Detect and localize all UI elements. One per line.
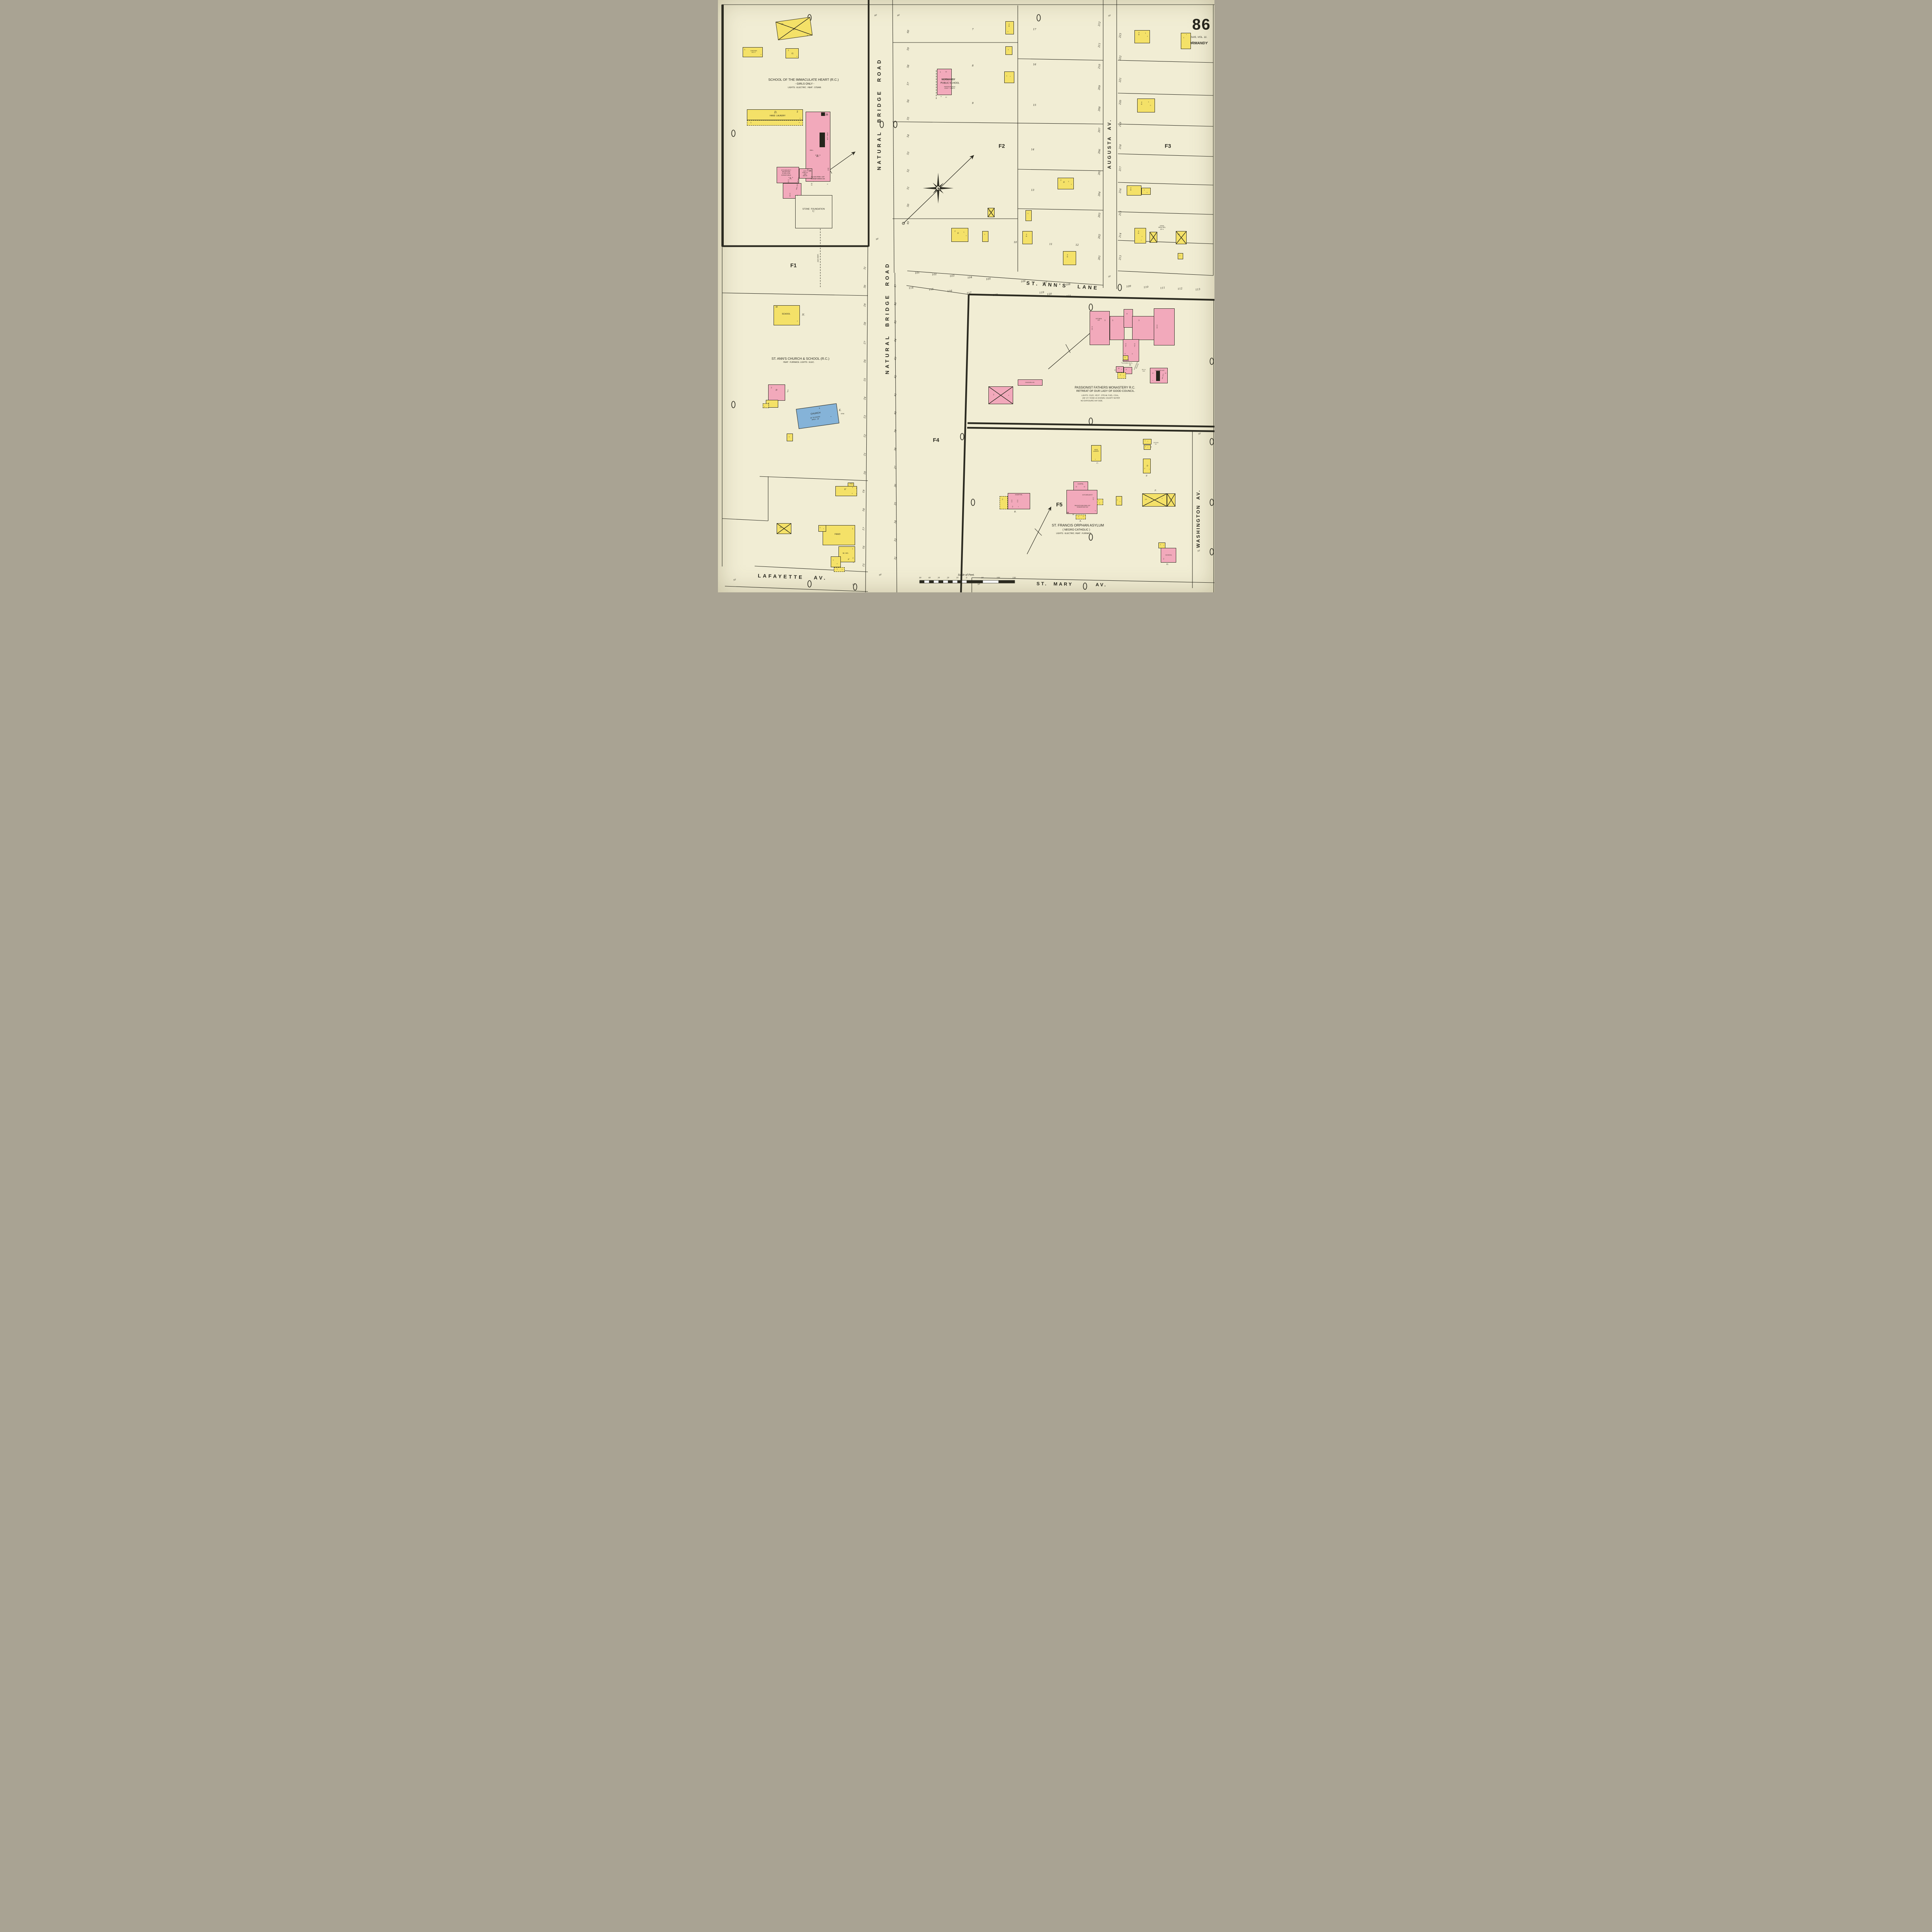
hand-laundry-c bbox=[1091, 445, 1101, 461]
map-label: 0 bbox=[1099, 503, 1100, 504]
map-label: 0 bbox=[1150, 105, 1151, 106]
post-office bbox=[835, 486, 857, 496]
map-label: 1 bbox=[789, 436, 789, 438]
map-label: 1 bbox=[1170, 498, 1170, 500]
scale-tick-label: 0 bbox=[966, 577, 967, 579]
dwelling bbox=[1181, 33, 1191, 49]
block-line bbox=[760, 476, 868, 481]
map-label: 1 bbox=[940, 71, 940, 73]
block-line bbox=[1118, 271, 1213, 276]
lot-number: 16 bbox=[1033, 63, 1036, 66]
lot-number: 46 bbox=[894, 302, 898, 306]
map-label: 1 bbox=[852, 487, 853, 489]
lot-number: 31 bbox=[863, 266, 867, 270]
block-line bbox=[722, 519, 768, 521]
map-label: D bbox=[1147, 465, 1148, 468]
hospital-wing bbox=[1000, 496, 1008, 509]
map-label: 2"V.P.& 50' bbox=[1122, 360, 1129, 361]
dwelling bbox=[1004, 71, 1014, 83]
lot-number: 202 bbox=[1098, 234, 1102, 239]
map-label: 1 bbox=[963, 231, 964, 233]
map-label: D bbox=[776, 389, 777, 391]
map-label: 1½ bbox=[781, 23, 783, 25]
oval-mark bbox=[1210, 549, 1213, 555]
dwelling bbox=[1026, 210, 1032, 221]
lot-number: 101 bbox=[915, 271, 920, 275]
map-label: • bbox=[1009, 394, 1009, 396]
map-label: 2 D bbox=[1009, 24, 1010, 27]
lot-number: 16 bbox=[862, 546, 866, 549]
monastery-barn bbox=[988, 386, 1013, 404]
map-label: A. bbox=[1080, 520, 1082, 522]
map-label: x bbox=[842, 569, 843, 570]
lot-number: 26 bbox=[863, 359, 867, 363]
lot-number: 53 bbox=[906, 151, 910, 155]
lot-number: 213 bbox=[1119, 255, 1122, 260]
street-label-natural-bridge-road-lower: NATURAL BRIDGE ROAD bbox=[884, 262, 890, 374]
street-label-washington-av: WASHINGTON AV. bbox=[1195, 489, 1201, 548]
dwelling-j bbox=[768, 384, 785, 401]
map-label: PUBLIC SCHOOL bbox=[940, 82, 959, 85]
map-label: 0 bbox=[797, 195, 798, 196]
compass-center bbox=[937, 187, 939, 189]
block-line bbox=[1118, 212, 1213, 214]
map-label: 1 bbox=[1078, 516, 1079, 517]
map-label: x bbox=[1163, 545, 1164, 546]
map-label: LIGHTS : ELEC. HEAT : STEAM. FUEL: COAL. bbox=[1082, 394, 1119, 396]
lot-number: 217 bbox=[1119, 166, 1122, 172]
scale-tick-label: 20 bbox=[947, 577, 949, 579]
lot-number: 41 bbox=[894, 393, 898, 397]
lot-number: 54 bbox=[906, 134, 910, 138]
lot-number: 11 bbox=[1049, 243, 1052, 246]
map-label: 12 12 12 bbox=[788, 180, 789, 184]
map-label: 12 12 12 bbox=[789, 193, 791, 197]
lot-number: 19 bbox=[862, 490, 866, 493]
map-label: "B." bbox=[815, 155, 821, 158]
lot-number: 204 bbox=[1098, 191, 1102, 197]
lot-number: 104 bbox=[967, 276, 972, 279]
lot-number: 206 bbox=[1098, 149, 1102, 154]
lot-number: 208 bbox=[1098, 106, 1102, 112]
shed bbox=[1150, 232, 1157, 243]
lot-number: 51 bbox=[906, 186, 910, 190]
map-label: • bbox=[823, 528, 824, 530]
map-label: 12 12 bbox=[1011, 500, 1012, 502]
lot-number: 22 bbox=[863, 434, 867, 438]
map-label: 2B bbox=[825, 114, 828, 116]
lot-number: 108 bbox=[1065, 283, 1070, 286]
map-label: 2 bbox=[1144, 468, 1145, 470]
map-label: LAUNDRY-1ST bbox=[1155, 370, 1165, 371]
barn-f-wing bbox=[1167, 493, 1175, 507]
district-label-f4: F4 bbox=[933, 437, 939, 444]
chimney bbox=[1156, 371, 1160, 381]
map-label: 1 bbox=[1145, 440, 1146, 442]
map-label: 3 bbox=[1124, 353, 1125, 355]
street-label-augusta-av: AUGUSTA AV. bbox=[1106, 119, 1112, 169]
map-label: x bbox=[837, 563, 838, 565]
oval-mark bbox=[1037, 15, 1040, 21]
map-label: F. bbox=[1155, 490, 1156, 492]
map-label: x bbox=[1120, 501, 1121, 503]
dwelling bbox=[1063, 251, 1076, 265]
map-label: NO EXPOSURE ANY SIDE. bbox=[1081, 400, 1103, 401]
lot-number: 110 bbox=[1143, 286, 1148, 289]
lot-number: 215 bbox=[1119, 211, 1122, 216]
scale-tick-label: 50 bbox=[919, 577, 922, 579]
block-line bbox=[1118, 93, 1213, 95]
map-label: 12 12 bbox=[1017, 500, 1018, 502]
map-label: 2 bbox=[954, 231, 955, 233]
map-label: x bbox=[797, 320, 798, 322]
map-label: 12 bbox=[1084, 486, 1085, 488]
map-label: 1 bbox=[1179, 255, 1180, 257]
map-label: STONE FOUNDATION 'C.' bbox=[803, 208, 825, 213]
block-line bbox=[722, 293, 868, 296]
map-label: 2 bbox=[1120, 374, 1121, 376]
map-label: W. HO. bbox=[843, 553, 849, 555]
lot-number: 221 bbox=[1119, 77, 1122, 83]
map-label: • bbox=[1141, 240, 1141, 241]
oval-mark bbox=[1118, 284, 1121, 291]
lot-number: 24 bbox=[863, 396, 867, 400]
outbuilding bbox=[1117, 372, 1126, 379]
map-label: 1½ bbox=[780, 527, 782, 529]
map-label: B'S'T ONLY bbox=[827, 132, 828, 140]
lot-number: 12 bbox=[1075, 244, 1078, 247]
map-label: x bbox=[1071, 184, 1072, 185]
block-line bbox=[1018, 169, 1103, 171]
map-label: H. bbox=[1073, 514, 1075, 516]
map-label: 12 bbox=[1165, 373, 1167, 374]
lot-number: 38 bbox=[894, 447, 898, 451]
map-label: RECEPTION R'MS-1ST DORMITORY-2D bbox=[1075, 505, 1090, 509]
asylum-main bbox=[1066, 490, 1097, 514]
lot-number: 209 bbox=[1098, 85, 1102, 90]
map-label: 12 bbox=[946, 71, 947, 73]
lot-number: 57 bbox=[906, 82, 910, 86]
lot-number: 118 bbox=[993, 293, 998, 297]
map-label: CLASS R'MS -1ST DORMITORIES-2D bbox=[811, 176, 825, 180]
map-label: D bbox=[1063, 182, 1065, 184]
map-label: 1 bbox=[1007, 31, 1008, 32]
map-label: 10 bbox=[1114, 370, 1116, 371]
lot-number: 120 bbox=[1047, 293, 1052, 296]
block-line bbox=[1118, 154, 1213, 156]
district-label-f3: F3 bbox=[1165, 143, 1171, 150]
lot-number: 49 bbox=[906, 221, 910, 225]
map-label: B'S'T R'MS-1½ AND ABOVE bbox=[802, 170, 808, 177]
store-annex bbox=[831, 556, 841, 567]
map-label: 12 12 bbox=[1093, 497, 1094, 500]
map-label: ( NEGRO CATHOLIC ) bbox=[1063, 529, 1090, 532]
lot-number: 107 bbox=[1042, 281, 1047, 285]
lot-number: 114 bbox=[908, 286, 913, 290]
block-line bbox=[1118, 182, 1213, 185]
lot-number: 55 bbox=[906, 117, 910, 121]
lot-number: 33 bbox=[894, 538, 898, 542]
lot-number: 214 bbox=[1119, 233, 1122, 238]
lot-number: 219 bbox=[1119, 122, 1122, 127]
map-label: S' bbox=[848, 559, 850, 561]
lot-number: 211 bbox=[1098, 43, 1102, 48]
map-label: • bbox=[1153, 380, 1153, 382]
scale-tick-label: 30 bbox=[938, 577, 940, 579]
scale-tick-label: 10 bbox=[956, 577, 959, 579]
lot-number: 58 bbox=[906, 65, 910, 68]
hand-laundry-annex bbox=[747, 120, 803, 126]
block-line bbox=[968, 423, 1214, 427]
map-label: 12 12 8 bbox=[1134, 344, 1135, 348]
lot-number: 14 bbox=[1031, 148, 1034, 151]
dwelling bbox=[1022, 231, 1032, 244]
lot-number: 44 bbox=[894, 338, 898, 342]
map-label: 1 bbox=[750, 121, 752, 123]
map-label: 1 bbox=[837, 568, 837, 570]
map-label: E bbox=[1146, 475, 1147, 477]
map-label: HEAT : FURNACE. LIGHTS : ELEC. bbox=[783, 362, 815, 364]
map-label: HAND LAUNDRY bbox=[1093, 449, 1099, 452]
lot-number: 218 bbox=[1119, 144, 1122, 150]
lot-number: 15 bbox=[1033, 104, 1036, 107]
map-label: 0 bbox=[1083, 516, 1084, 518]
map-label: x bbox=[966, 235, 967, 237]
block-line bbox=[866, 247, 868, 592]
lot-number: 106 bbox=[1020, 280, 1026, 283]
annotation-immaculate-heart: SCHOOL OF THE IMMACULATE HEART (R.C.) bbox=[768, 78, 838, 82]
lot-number: 30 bbox=[863, 285, 867, 289]
map-label: B. bbox=[1014, 511, 1017, 513]
map-label: x bbox=[1148, 447, 1148, 448]
map-label: 4 bbox=[1126, 313, 1128, 315]
map-label: x bbox=[799, 122, 800, 123]
lot-number: 119 bbox=[1039, 291, 1044, 294]
map-label: x bbox=[853, 562, 854, 563]
map-label: LIGHTS : ELECTRIC . HEAT : STEAM. bbox=[788, 87, 821, 89]
map-label: 1 bbox=[1068, 181, 1069, 182]
block-line bbox=[1018, 59, 1103, 60]
map-label: 2 D bbox=[1138, 231, 1139, 235]
map-label: NORMANDY bbox=[942, 78, 955, 81]
lot-number: 102 bbox=[932, 273, 937, 276]
windmill-barn bbox=[1176, 231, 1187, 244]
map-label: 3B bbox=[809, 170, 811, 172]
oval-mark bbox=[731, 401, 735, 408]
map-label: HEAT:FURNACE. LIGHT : LAMPS . bbox=[944, 86, 956, 90]
map-label: H. bbox=[802, 313, 805, 316]
barn-lafayette bbox=[777, 523, 791, 534]
map-label: CHICKEN HO. F. bbox=[750, 50, 757, 54]
map-label: E. bbox=[793, 28, 796, 31]
map-label: C. bbox=[1097, 463, 1099, 465]
lot-number: 25 bbox=[863, 378, 867, 382]
dwelling-wing bbox=[1141, 188, 1151, 195]
lot-number: 29 bbox=[863, 303, 867, 307]
lot-number: 9 bbox=[972, 102, 973, 105]
scale-tick-label: 150 bbox=[1012, 577, 1016, 579]
lot-number: 10 bbox=[1014, 241, 1017, 244]
lot-number: 36 bbox=[894, 484, 898, 488]
map-label: 16 12 12 bbox=[1156, 325, 1158, 329]
map-label: 2 D bbox=[1141, 102, 1142, 105]
map-label: x bbox=[1147, 36, 1148, 37]
oval-mark bbox=[893, 121, 897, 128]
map-label: KITCHEN 1ST bbox=[1096, 318, 1102, 321]
map-label: 2 D bbox=[1026, 234, 1027, 238]
map-label: H. bbox=[1129, 364, 1132, 367]
map-label: x bbox=[831, 416, 832, 417]
map-label: 3 bbox=[1138, 319, 1139, 321]
district-label-f2: F2 bbox=[998, 143, 1005, 150]
map-label: x bbox=[1147, 192, 1148, 194]
lot-number: 34 bbox=[894, 520, 898, 524]
chimney bbox=[820, 133, 825, 147]
map-label: 1 bbox=[1144, 189, 1145, 191]
map-label: 12 12 8 bbox=[1125, 344, 1126, 348]
sheet-number: 86 bbox=[1192, 15, 1211, 34]
block-line bbox=[1118, 124, 1213, 126]
map-label: 16 16 bbox=[828, 168, 829, 171]
map-label: 3 bbox=[1104, 319, 1105, 321]
block-line bbox=[755, 566, 868, 572]
lot-number: 40 bbox=[894, 411, 898, 415]
map-label: • bbox=[1095, 510, 1096, 512]
map-label: 150' 1½" HOSE AS SHOWN. COUNTY WATER bbox=[1082, 397, 1120, 399]
lot-number: 113 bbox=[1195, 288, 1200, 291]
map-label: D. bbox=[774, 111, 777, 114]
lot-number: 121 bbox=[1066, 294, 1071, 298]
map-label: 1 bbox=[984, 234, 985, 236]
map-label: 3 bbox=[1124, 357, 1125, 359]
district-label-f5: F5 bbox=[1056, 502, 1062, 508]
map-label: 1 bbox=[856, 488, 857, 490]
oval-mark bbox=[971, 499, 975, 506]
oval-mark bbox=[808, 581, 811, 587]
dwelling-j-porch bbox=[763, 403, 769, 408]
map-label: x bbox=[1142, 236, 1143, 238]
oval-mark bbox=[1210, 439, 1213, 445]
map-label: LIGHTS : ELECTRIC. HEAT : FURNACE. bbox=[1056, 533, 1092, 535]
dwelling bbox=[1134, 228, 1146, 243]
block-line bbox=[1118, 240, 1213, 244]
map-label: KITCHEN-B'S'T RECEPTION CLASS R'MS DORMI… bbox=[781, 170, 791, 176]
lot-number: 212 bbox=[1098, 21, 1102, 27]
map-label: 18 bbox=[776, 306, 778, 309]
lot-number: 116 bbox=[947, 289, 952, 293]
map-label: G. bbox=[1167, 563, 1169, 566]
map-label: -325 FEET- bbox=[817, 253, 819, 262]
map-label: 2 bbox=[1002, 498, 1003, 500]
map-label: KITCHEN-B'S'T bbox=[1082, 494, 1093, 496]
map-label: 0 bbox=[1132, 353, 1133, 355]
map-label: x bbox=[787, 529, 787, 531]
map-label: 2 D bbox=[1130, 187, 1131, 191]
dwelling bbox=[1127, 185, 1141, 196]
block-line bbox=[1066, 344, 1070, 353]
lot-number: 43 bbox=[894, 357, 898, 361]
lot-number: 42 bbox=[894, 375, 898, 379]
map-label: 1½ bbox=[1178, 234, 1180, 236]
lot-number: 28 bbox=[863, 322, 867, 326]
sanborn-map-sheet: 86 ST. LOUIS, VOL. 11. NORMANDY NATURAL … bbox=[718, 0, 1214, 592]
monastery-wing bbox=[1132, 316, 1155, 340]
lot-number: 39 bbox=[894, 429, 898, 433]
map-label: 1 bbox=[1160, 544, 1161, 546]
asylum-porch bbox=[1076, 515, 1086, 519]
block-line bbox=[961, 294, 969, 592]
map-label: x bbox=[1182, 238, 1183, 240]
map-label: 16 16 bbox=[811, 183, 813, 186]
map-label: 0 bbox=[1132, 369, 1133, 371]
page: 86 ST. LOUIS, VOL. 11. NORMANDY NATURAL … bbox=[718, 0, 1214, 592]
map-label: 1 bbox=[852, 548, 853, 550]
lot-number: 20 bbox=[863, 471, 867, 475]
map-label: 12 bbox=[946, 97, 947, 98]
lot-number: 32 bbox=[894, 556, 898, 560]
chimney bbox=[821, 112, 825, 116]
map-label: x bbox=[1121, 369, 1122, 371]
block-line bbox=[969, 294, 1214, 300]
map-label: 1 bbox=[744, 48, 745, 50]
lot-number: 210 bbox=[1098, 64, 1102, 69]
map-label: 1 bbox=[852, 527, 853, 529]
map-label: x bbox=[764, 406, 765, 408]
map-label: x bbox=[852, 493, 853, 494]
scale-title: Scale of Feet. bbox=[958, 574, 975, 577]
lot-number: 50 bbox=[906, 204, 910, 207]
map-label: x bbox=[1124, 375, 1124, 377]
map-label: 1 bbox=[1027, 213, 1028, 215]
oval-mark bbox=[960, 434, 964, 440]
map-label: x bbox=[1149, 469, 1150, 470]
district-label-f1: F1 bbox=[790, 262, 796, 269]
barn bbox=[988, 208, 995, 217]
lot-number: 201 bbox=[1098, 255, 1102, 260]
map-label: 7 bbox=[1098, 500, 1099, 502]
oval-mark bbox=[1210, 358, 1213, 365]
north-arrow bbox=[1027, 507, 1051, 554]
map-label: x bbox=[797, 56, 798, 57]
map-label: D bbox=[1150, 446, 1152, 448]
chicken-house-d bbox=[1144, 445, 1151, 450]
lot-number: 56 bbox=[906, 99, 910, 103]
oval-mark bbox=[1089, 418, 1092, 425]
map-label: x bbox=[1162, 498, 1163, 500]
map-label: HOSPITAL bbox=[1015, 494, 1023, 496]
map-label: x bbox=[761, 54, 762, 55]
map-label: FEED bbox=[835, 533, 840, 536]
map-label: • bbox=[1010, 76, 1010, 78]
map-label: 1 bbox=[1117, 499, 1117, 501]
scale-tick-label: 40 bbox=[929, 577, 931, 579]
block-line bbox=[893, 122, 1103, 124]
annotation-st-francis: ST. FRANCIS ORPHAN ASYLUM bbox=[1052, 524, 1104, 528]
monastery-wing bbox=[1110, 316, 1124, 340]
lot-number: 7 bbox=[972, 28, 973, 31]
lot-number: 117 bbox=[966, 291, 971, 295]
map-label: RETREAT OF OUR LADY OF GOOD COUNCIL. bbox=[1077, 390, 1135, 393]
map-label: 1 bbox=[1008, 49, 1009, 51]
map-label: 2 bbox=[852, 557, 854, 559]
lot-number: 216 bbox=[1119, 188, 1122, 194]
dwelling bbox=[982, 231, 988, 242]
map-label: CHICKEN HO. bbox=[1153, 442, 1159, 445]
map-label: 1 bbox=[1148, 101, 1149, 103]
map-label: 2 bbox=[1012, 505, 1013, 507]
map-label: x bbox=[807, 35, 808, 37]
lot-number: 21 bbox=[863, 452, 867, 456]
